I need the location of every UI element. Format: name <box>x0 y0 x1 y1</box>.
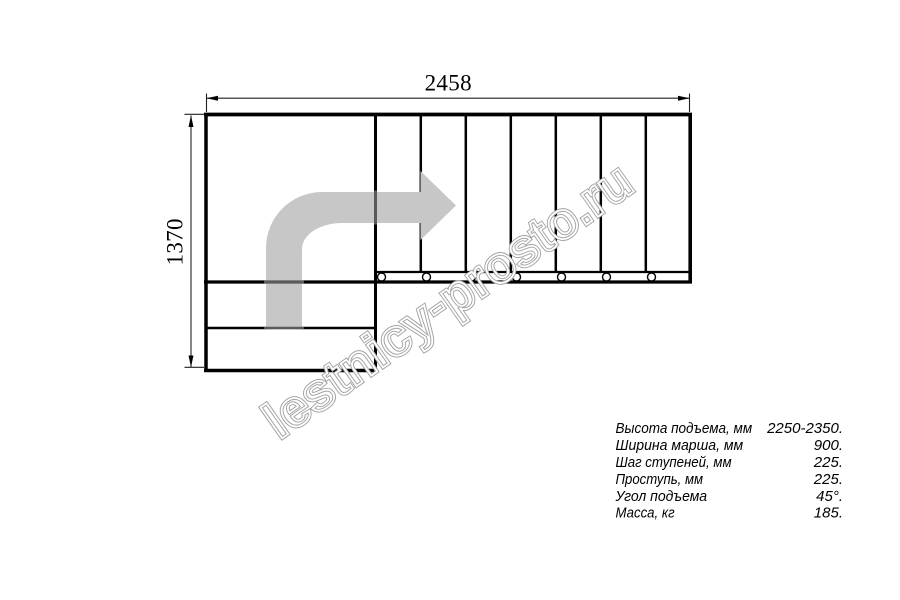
svg-text:185.: 185. <box>814 505 843 522</box>
svg-text:900.: 900. <box>814 437 843 454</box>
svg-text:1370: 1370 <box>162 219 187 266</box>
svg-text:Высота подъема, мм: Высота подъема, мм <box>616 420 753 437</box>
svg-text:2250-2350.: 2250-2350. <box>766 420 843 437</box>
svg-text:Проступь, мм: Проступь, мм <box>616 471 704 488</box>
svg-text:Шаг ступеней, мм: Шаг ступеней, мм <box>616 454 732 471</box>
svg-text:Масса, кг: Масса, кг <box>616 505 676 522</box>
svg-text:Угол подъема: Угол подъема <box>615 488 708 505</box>
svg-text:225.: 225. <box>813 471 843 488</box>
svg-text:Ширина марша, мм: Ширина марша, мм <box>616 437 744 454</box>
svg-text:225.: 225. <box>813 454 843 471</box>
svg-text:45°.: 45°. <box>816 488 843 505</box>
svg-text:2458: 2458 <box>425 71 472 96</box>
